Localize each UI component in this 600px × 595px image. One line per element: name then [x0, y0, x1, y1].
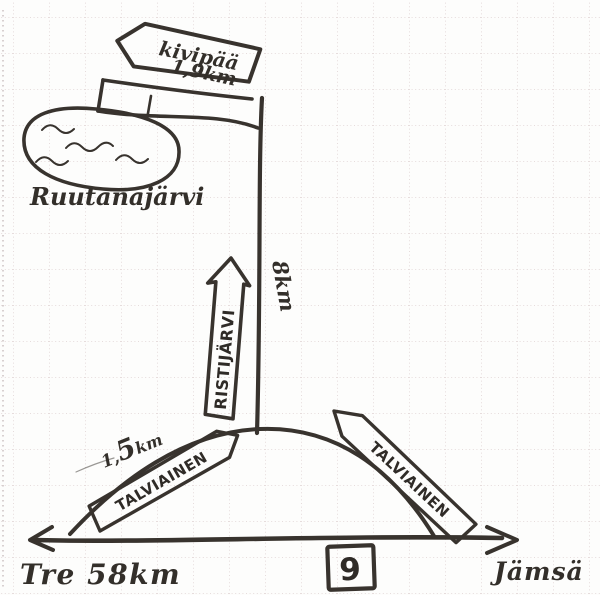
route-number-label: 9 — [339, 552, 362, 589]
sketch-map-drawing: Ruutanajärvi kivipää 1,9km 8km RISTIJÄRV… — [0, 0, 600, 595]
sketch-map-canvas: Ruutanajärvi kivipää 1,9km 8km RISTIJÄRV… — [0, 0, 600, 595]
highway-left-destination-label: Tre 58km — [20, 558, 181, 591]
lake-name-label: Ruutanajärvi — [29, 182, 204, 211]
highway-right-destination-label: Jämsä — [490, 557, 584, 586]
